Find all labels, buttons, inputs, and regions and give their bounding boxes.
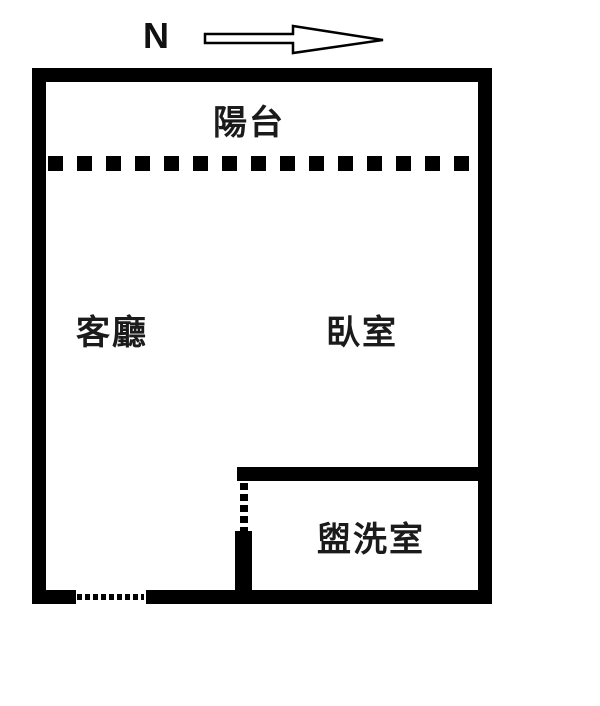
room-label-balcony: 陽台 [213, 106, 285, 140]
washroom-wall-top [237, 467, 478, 481]
balcony-partition-dashed-line [48, 156, 476, 171]
north-arrow-icon [203, 24, 387, 56]
outer-wall-left [32, 68, 46, 604]
outer-wall-right [478, 68, 492, 604]
outer-wall-bottom-main [146, 590, 492, 604]
washroom-wall-divider [235, 531, 252, 591]
north-label: N [143, 18, 169, 54]
room-label-bedroom: 臥室 [326, 316, 398, 350]
outer-wall-bottom-left [32, 590, 76, 604]
room-label-washroom: 盥洗室 [317, 523, 425, 557]
outer-wall-top [32, 68, 492, 82]
entrance-door-dotted-line [77, 594, 144, 600]
room-label-living-room: 客廳 [76, 316, 148, 350]
washroom-door-dotted-line [240, 483, 248, 531]
floor-plan-canvas: N 陽台 客廳 臥室 盥洗室 [0, 0, 600, 706]
